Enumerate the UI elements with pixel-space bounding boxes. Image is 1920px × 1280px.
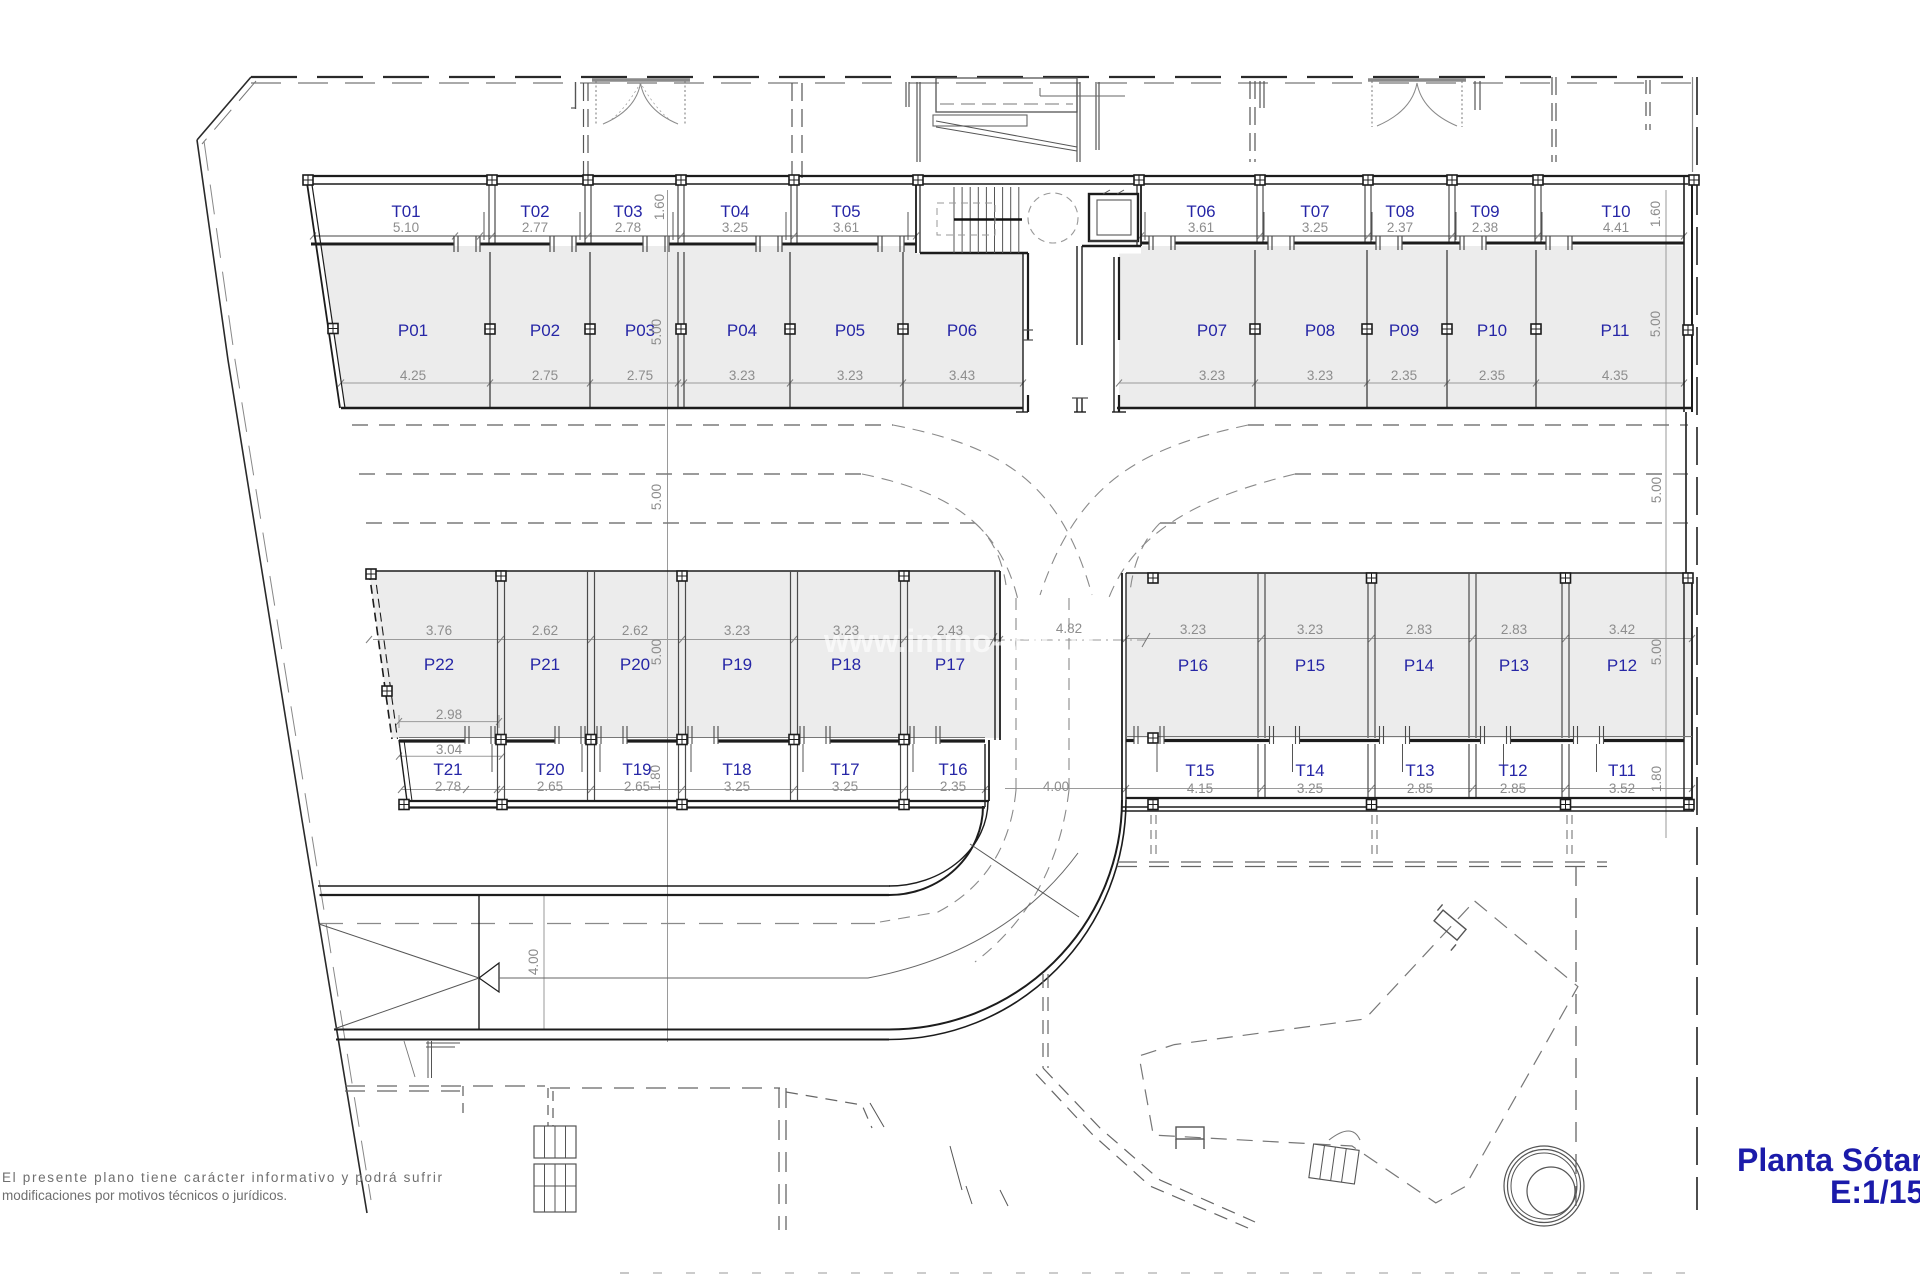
svg-text:2.62: 2.62 <box>622 623 648 638</box>
svg-text:2.35: 2.35 <box>1391 368 1417 383</box>
svg-text:P09: P09 <box>1389 321 1419 340</box>
svg-text:T18: T18 <box>722 760 751 779</box>
svg-text:3.76: 3.76 <box>426 623 452 638</box>
svg-text:P05: P05 <box>835 321 865 340</box>
svg-text:3.23: 3.23 <box>724 623 750 638</box>
svg-text:3.52: 3.52 <box>1609 781 1635 796</box>
svg-text:T20: T20 <box>535 760 564 779</box>
svg-text:5.00: 5.00 <box>649 484 664 510</box>
svg-text:1.80: 1.80 <box>648 765 663 791</box>
svg-text:2.83: 2.83 <box>1501 622 1527 637</box>
svg-text:4.15: 4.15 <box>1187 781 1213 796</box>
svg-text:2.85: 2.85 <box>1500 781 1526 796</box>
svg-text:4.35: 4.35 <box>1602 368 1628 383</box>
svg-text:3.23: 3.23 <box>1180 622 1206 637</box>
svg-text:2.78: 2.78 <box>615 220 641 235</box>
svg-text:3.23: 3.23 <box>1297 622 1323 637</box>
svg-text:3.23: 3.23 <box>1199 368 1225 383</box>
svg-text:P08: P08 <box>1305 321 1335 340</box>
svg-text:2.37: 2.37 <box>1387 220 1413 235</box>
svg-text:P07: P07 <box>1197 321 1227 340</box>
svg-text:T08: T08 <box>1385 202 1414 221</box>
svg-text:T15: T15 <box>1185 761 1214 780</box>
svg-text:3.04: 3.04 <box>436 742 463 757</box>
svg-text:www.immo-banca: www.immo-banca <box>823 623 1095 659</box>
svg-text:1.60: 1.60 <box>652 194 667 220</box>
svg-text:Planta Sótano: Planta Sótano <box>1737 1142 1920 1178</box>
svg-text:5.00: 5.00 <box>649 639 664 665</box>
svg-text:3.23: 3.23 <box>729 368 755 383</box>
svg-text:P15: P15 <box>1295 656 1325 675</box>
svg-text:T01: T01 <box>391 202 420 221</box>
svg-text:T02: T02 <box>520 202 549 221</box>
svg-text:T09: T09 <box>1470 202 1499 221</box>
svg-text:P16: P16 <box>1178 656 1208 675</box>
svg-text:1.60: 1.60 <box>1648 201 1663 227</box>
svg-text:T03: T03 <box>613 202 642 221</box>
svg-text:T13: T13 <box>1405 761 1434 780</box>
svg-text:P14: P14 <box>1404 656 1434 675</box>
svg-text:P19: P19 <box>722 655 752 674</box>
svg-text:2.38: 2.38 <box>1472 220 1498 235</box>
svg-text:3.42: 3.42 <box>1609 622 1635 637</box>
svg-text:4.00: 4.00 <box>1043 779 1069 794</box>
svg-text:3.25: 3.25 <box>1297 781 1323 796</box>
svg-text:5.00: 5.00 <box>649 319 664 345</box>
svg-text:P12: P12 <box>1607 656 1637 675</box>
svg-text:P01: P01 <box>398 321 428 340</box>
svg-text:T17: T17 <box>830 760 859 779</box>
svg-text:2.75: 2.75 <box>532 368 558 383</box>
svg-text:3.23: 3.23 <box>1307 368 1333 383</box>
svg-text:P22: P22 <box>424 655 454 674</box>
svg-text:2.62: 2.62 <box>532 623 558 638</box>
svg-text:5.00: 5.00 <box>1648 311 1663 337</box>
svg-text:P02: P02 <box>530 321 560 340</box>
svg-text:T06: T06 <box>1186 202 1215 221</box>
svg-text:2.78: 2.78 <box>435 779 461 794</box>
svg-text:2.75: 2.75 <box>627 368 653 383</box>
svg-text:3.25: 3.25 <box>1302 220 1328 235</box>
svg-text:3.61: 3.61 <box>1188 220 1214 235</box>
svg-text:T07: T07 <box>1300 202 1329 221</box>
svg-text:3.23: 3.23 <box>837 368 863 383</box>
svg-text:2.98: 2.98 <box>436 707 462 722</box>
svg-text:2.85: 2.85 <box>1407 781 1433 796</box>
svg-text:4.41: 4.41 <box>1603 220 1629 235</box>
svg-text:T04: T04 <box>720 202 749 221</box>
svg-text:2.83: 2.83 <box>1406 622 1432 637</box>
svg-text:T11: T11 <box>1608 761 1636 780</box>
svg-text:5.10: 5.10 <box>393 220 419 235</box>
svg-text:T16: T16 <box>938 760 967 779</box>
svg-text:P11: P11 <box>1601 321 1630 340</box>
svg-text:2.65: 2.65 <box>624 779 650 794</box>
svg-text:3.61: 3.61 <box>833 220 859 235</box>
svg-text:4.00: 4.00 <box>526 949 541 975</box>
svg-text:5.00: 5.00 <box>1649 639 1664 665</box>
svg-text:T12: T12 <box>1498 761 1527 780</box>
svg-text:P10: P10 <box>1477 321 1507 340</box>
svg-text:T05: T05 <box>831 202 860 221</box>
svg-text:2.65: 2.65 <box>537 779 563 794</box>
svg-text:modificaciones por motivos téc: modificaciones por motivos técnicos o ju… <box>2 1188 287 1203</box>
svg-text:P13: P13 <box>1499 656 1529 675</box>
svg-text:P06: P06 <box>947 321 977 340</box>
svg-text:5.00: 5.00 <box>1649 477 1664 503</box>
svg-text:E:1/150: E:1/150 <box>1830 1174 1920 1210</box>
svg-text:1.80: 1.80 <box>1649 766 1664 792</box>
svg-text:T14: T14 <box>1295 761 1324 780</box>
svg-text:2.35: 2.35 <box>940 779 966 794</box>
svg-text:P21: P21 <box>530 655 560 674</box>
svg-text:3.43: 3.43 <box>949 368 975 383</box>
svg-text:T10: T10 <box>1601 202 1630 221</box>
svg-text:P20: P20 <box>620 655 650 674</box>
svg-text:T21: T21 <box>433 760 462 779</box>
svg-text:2.35: 2.35 <box>1479 368 1505 383</box>
svg-text:3.25: 3.25 <box>722 220 748 235</box>
svg-text:3.25: 3.25 <box>832 779 858 794</box>
svg-text:P04: P04 <box>727 321 757 340</box>
svg-text:2.77: 2.77 <box>522 220 548 235</box>
svg-text:El presente plano tiene caráct: El presente plano tiene carácter informa… <box>2 1170 442 1185</box>
svg-text:3.25: 3.25 <box>724 779 750 794</box>
svg-text:4.25: 4.25 <box>400 368 426 383</box>
